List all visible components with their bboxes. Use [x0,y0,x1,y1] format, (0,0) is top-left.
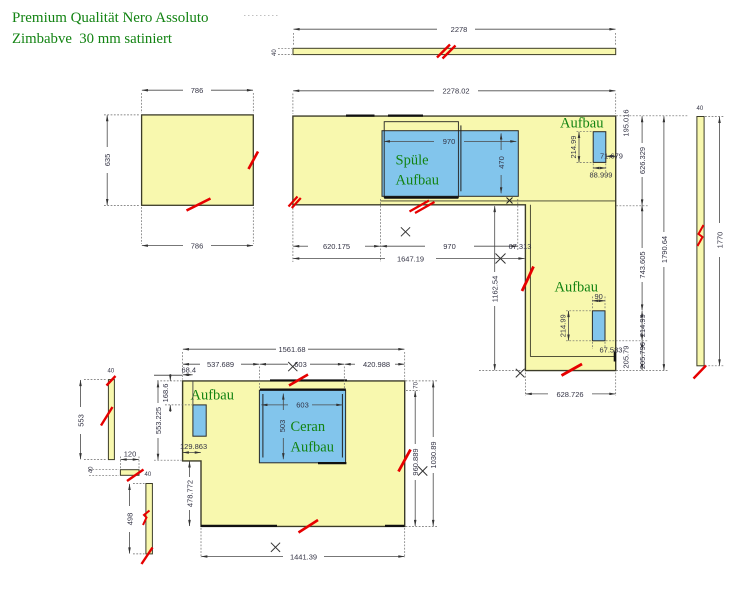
svg-text:68.4: 68.4 [182,366,197,375]
svg-text:Aufbau: Aufbau [191,388,235,404]
svg-text:71.679: 71.679 [600,152,623,161]
svg-text:Spüle: Spüle [396,153,429,169]
svg-text:1162.54: 1162.54 [491,276,500,303]
svg-text:1030.89: 1030.89 [429,441,438,468]
svg-text:67.583: 67.583 [600,346,623,355]
svg-text:420.988: 420.988 [363,360,390,369]
svg-text:214.99: 214.99 [569,136,578,159]
svg-text:Aufbau: Aufbau [560,116,604,132]
svg-text:603: 603 [296,401,309,410]
svg-text:88.999: 88.999 [590,171,613,180]
svg-text:205.796: 205.796 [638,342,647,369]
svg-text:214.99: 214.99 [559,314,568,337]
svg-text:Aufbau: Aufbau [555,280,599,296]
svg-text:553: 553 [76,414,85,427]
svg-text:120: 120 [124,449,137,458]
svg-text:786: 786 [191,86,204,95]
svg-text:168.6: 168.6 [161,384,170,403]
svg-text:620.175: 620.175 [323,242,350,251]
svg-text:40: 40 [145,472,152,478]
svg-text:67.313: 67.313 [509,242,532,251]
svg-text:628.726: 628.726 [556,390,583,399]
svg-text:40: 40 [697,106,704,112]
svg-text:743.605: 743.605 [638,251,647,278]
svg-text:1790.64: 1790.64 [660,236,669,263]
svg-text:129.863: 129.863 [180,442,207,451]
svg-text:603: 603 [294,360,307,369]
svg-text:470: 470 [497,156,506,169]
svg-text:970: 970 [443,242,456,251]
svg-text:478.772: 478.772 [185,480,194,507]
svg-text:1441.39: 1441.39 [290,553,317,562]
svg-text:786: 786 [191,242,204,251]
svg-text:635: 635 [103,154,112,167]
svg-text:40: 40 [88,466,94,473]
svg-text:90: 90 [595,292,603,301]
svg-text:214.99: 214.99 [638,314,647,337]
svg-text:503: 503 [278,420,287,433]
svg-text:1770: 1770 [715,232,724,249]
svg-text:40: 40 [272,49,278,56]
svg-text:626.329: 626.329 [638,147,647,174]
svg-text:498: 498 [125,513,134,526]
svg-text:195.016: 195.016 [622,109,631,136]
svg-text:Ceran: Ceran [291,419,326,435]
svg-text:205.79: 205.79 [622,346,631,369]
svg-text:70: 70 [414,381,420,388]
svg-text:1647.19: 1647.19 [397,255,424,264]
svg-text:Aufbau: Aufbau [291,440,335,456]
svg-text:537.689: 537.689 [207,360,234,369]
svg-text:2278.02: 2278.02 [442,87,469,96]
svg-text:970: 970 [443,137,456,146]
svg-text:Zimbabve 30 mm satiniert: Zimbabve 30 mm satiniert [12,30,173,47]
svg-text:960.889: 960.889 [411,448,420,475]
svg-text:1561.68: 1561.68 [278,345,305,354]
svg-text:40: 40 [108,369,115,375]
svg-text:Aufbau: Aufbau [396,173,440,189]
svg-text:2278: 2278 [451,25,468,34]
svg-text:Premium Qualität Nero Assoluto: Premium Qualität Nero Assoluto [12,9,209,26]
svg-text:553.225: 553.225 [154,407,163,434]
